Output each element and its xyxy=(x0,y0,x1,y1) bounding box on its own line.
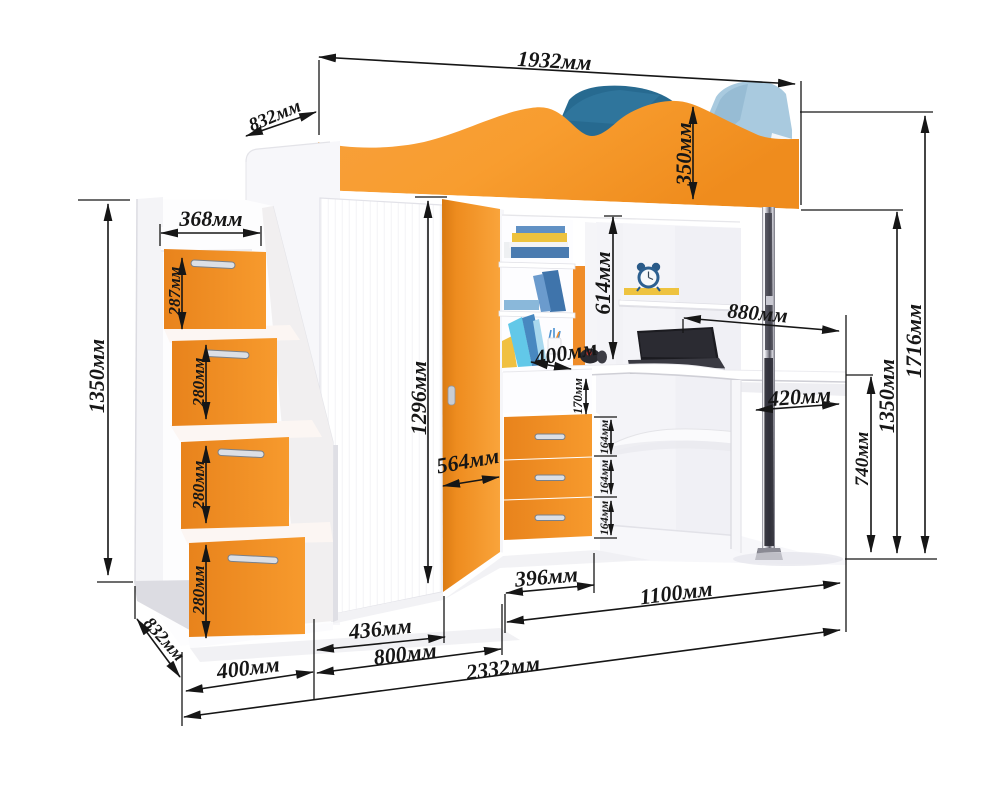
svg-text:1100мм: 1100мм xyxy=(638,576,713,610)
svg-text:614мм: 614мм xyxy=(590,251,615,314)
svg-text:170мм: 170мм xyxy=(571,378,585,414)
svg-text:880мм: 880мм xyxy=(727,299,789,328)
svg-text:368мм: 368мм xyxy=(178,206,242,231)
svg-text:1350мм: 1350мм xyxy=(874,359,899,433)
svg-text:420мм: 420мм xyxy=(766,382,832,411)
svg-text:287мм: 287мм xyxy=(165,266,184,316)
svg-text:164мм: 164мм xyxy=(597,501,611,535)
svg-text:740мм: 740мм xyxy=(852,432,873,487)
svg-text:1716мм: 1716мм xyxy=(901,304,926,378)
svg-text:832мм: 832мм xyxy=(246,96,304,137)
svg-text:350мм: 350мм xyxy=(671,122,696,186)
svg-text:280мм: 280мм xyxy=(189,565,208,615)
svg-text:280мм: 280мм xyxy=(189,357,208,407)
svg-text:1350мм: 1350мм xyxy=(84,339,109,413)
svg-text:1296мм: 1296мм xyxy=(406,361,431,435)
svg-text:164мм: 164мм xyxy=(597,420,611,454)
svg-text:280мм: 280мм xyxy=(189,460,208,510)
svg-text:1932мм: 1932мм xyxy=(517,46,592,75)
svg-text:2332мм: 2332мм xyxy=(464,650,542,685)
svg-text:164мм: 164мм xyxy=(597,460,611,494)
